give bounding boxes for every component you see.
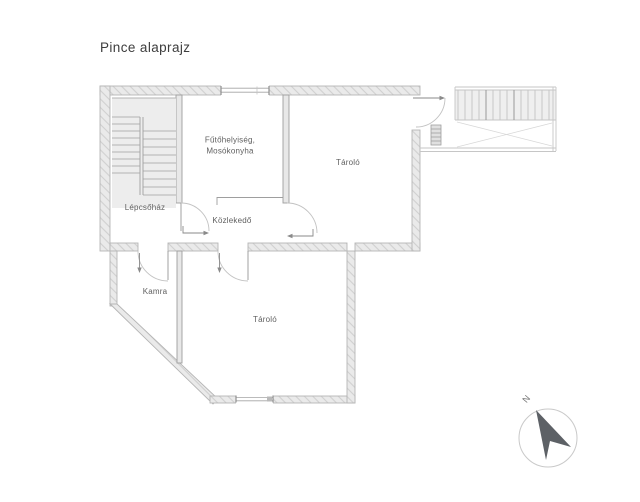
wall-left — [100, 86, 110, 251]
door-jamb-pier — [431, 125, 441, 145]
wall-bottom-b — [272, 396, 355, 403]
door-exterior — [413, 96, 445, 127]
room-label-pantry: Kamra — [143, 287, 168, 298]
wall-east-lower — [347, 251, 355, 403]
north-arrow-needle — [536, 410, 571, 460]
room-label-storage-bottom: Tároló — [253, 315, 277, 326]
wall-heating-storage — [283, 95, 289, 203]
window-bottom-nub — [267, 397, 272, 402]
floorplan-drawing — [0, 0, 640, 502]
wall-bottom-a — [210, 396, 237, 403]
wall-corridor-c — [248, 243, 347, 251]
door-storage-bottom — [217, 251, 248, 281]
door-storage-top — [287, 203, 317, 238]
room-label-staircase: Lépcsőház — [125, 203, 166, 214]
room-label-heating-line1: Fűtőhelyiség, — [205, 136, 255, 147]
wall-left-lower — [110, 251, 117, 306]
door-pantry — [137, 251, 168, 281]
basement-floorplan-canvas: Pince alaprajz — [0, 0, 640, 502]
wall-staircase-heating — [176, 95, 182, 203]
wall-diagonal — [110, 304, 218, 404]
room-label-corridor: Közlekedő — [212, 216, 251, 227]
north-arrow — [519, 409, 577, 467]
room-label-storage-top: Tároló — [336, 158, 360, 169]
wall-right-upper — [412, 130, 420, 251]
doors — [137, 96, 445, 281]
staircase — [112, 98, 176, 208]
exterior-stair-slope-lines — [457, 122, 552, 147]
wall-corridor-a — [110, 243, 138, 251]
wall-corridor-b — [168, 243, 218, 251]
door-heating — [181, 203, 209, 235]
wall-corridor-d — [355, 243, 420, 251]
wall-pantry-storage — [177, 251, 182, 363]
room-label-heating-line2: Mosókonyha — [205, 146, 255, 157]
room-label-heating: Fűtőhelyiség, Mosókonyha — [205, 136, 255, 157]
